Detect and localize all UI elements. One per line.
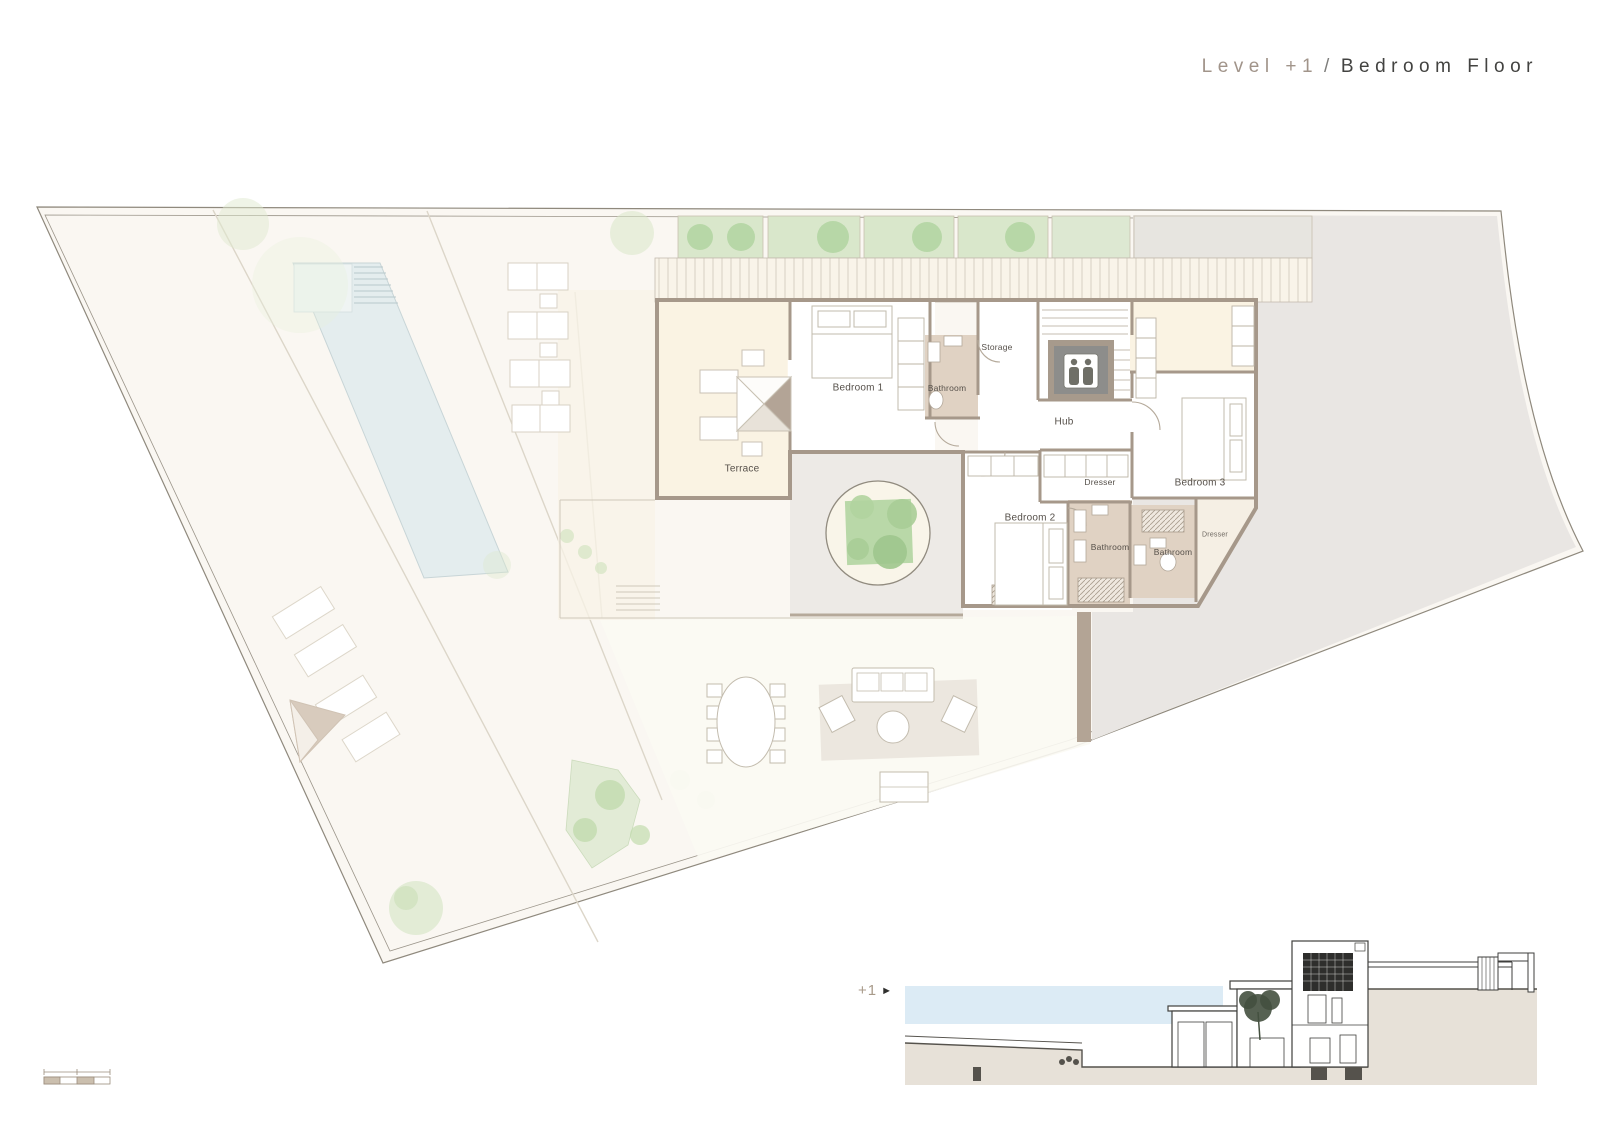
deck-band	[655, 258, 1312, 302]
room-label-bedroom-1: Bedroom 1	[833, 383, 884, 394]
section-drawing	[905, 941, 1537, 1085]
section-level-marker: +1 ►	[858, 982, 892, 999]
planter-row	[678, 216, 1312, 258]
room-label-dresser-2: Dresser	[1202, 532, 1228, 539]
title-level: Level +1	[1202, 56, 1318, 77]
room-label-bathroom-1: Bathroom	[928, 383, 966, 393]
room-label-storage: Storage	[981, 342, 1012, 352]
elevator-icon	[1048, 340, 1114, 400]
site-plan-drawing	[0, 0, 1600, 1130]
title-separator: /	[1318, 56, 1341, 77]
wood-path	[1077, 612, 1091, 742]
room-label-bedroom-3: Bedroom 3	[1175, 478, 1226, 489]
room-label-bedroom-2: Bedroom 2	[1005, 513, 1056, 524]
room-label-bathroom-2: Bathroom	[1091, 542, 1129, 552]
side-yard	[558, 290, 655, 620]
room-label-bathroom-3: Bathroom	[1154, 547, 1192, 557]
floor-plan-sheet: Level +1/Bedroom Floor Terrace Bedroom 1…	[0, 0, 1600, 1130]
scale-bar	[44, 1069, 110, 1084]
dining-set	[707, 677, 785, 767]
page-title: Level +1/Bedroom Floor	[1202, 56, 1538, 78]
room-label-hub: Hub	[1055, 417, 1074, 428]
room-label-terrace: Terrace	[725, 464, 760, 475]
louver-screen	[1303, 953, 1353, 991]
room-label-dresser-1: Dresser	[1084, 477, 1115, 487]
section-level-text: +1	[858, 982, 877, 999]
section-arrow-icon: ►	[881, 985, 892, 997]
courtyard	[790, 452, 963, 615]
title-floor-name: Bedroom Floor	[1341, 56, 1538, 77]
